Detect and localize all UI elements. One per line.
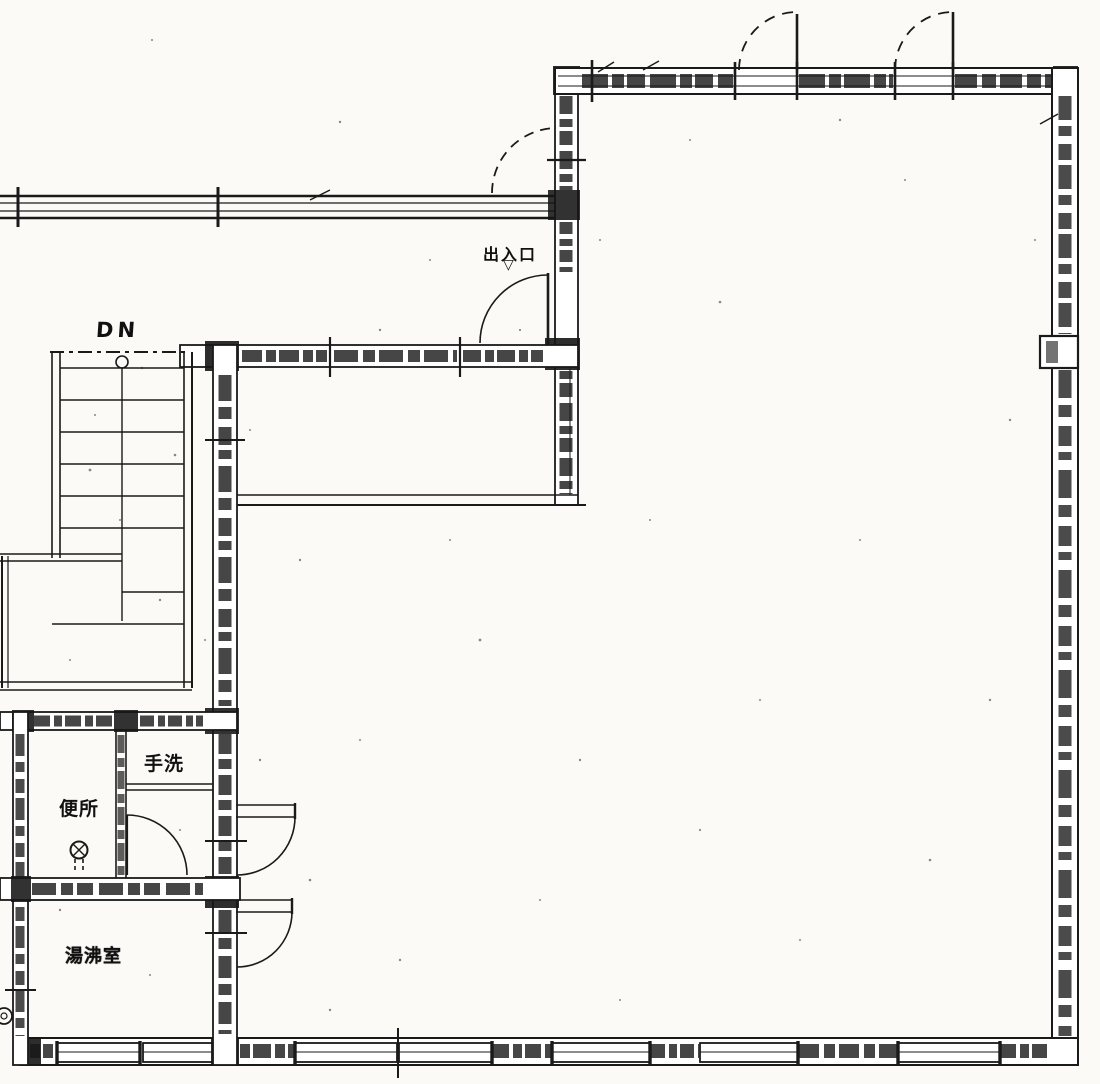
stair-direction-label: DN bbox=[95, 318, 140, 342]
entrance-wall-vertical bbox=[545, 66, 586, 505]
service-block-walls bbox=[0, 710, 240, 1065]
top-wall-door-left bbox=[739, 12, 797, 70]
top-wall-door-right bbox=[895, 12, 953, 70]
inner-room-thin-walls bbox=[230, 367, 578, 505]
corridor-door-upper bbox=[236, 803, 295, 875]
inner-wall-vestibule-south bbox=[180, 337, 578, 377]
floor-plan-drawing bbox=[0, 0, 1100, 1084]
exterior-wall-top bbox=[555, 60, 1078, 102]
exterior-wall-right bbox=[1040, 68, 1078, 1065]
scan-noise bbox=[59, 39, 1036, 1011]
floor-plan-sheet: DN 出入口 ▽ 手洗 便所 湯沸室 bbox=[0, 0, 1100, 1084]
main-vertical-wall bbox=[205, 345, 247, 1065]
toilet-fixture bbox=[71, 842, 88, 874]
toilet-door bbox=[127, 815, 187, 875]
sink-fixture bbox=[0, 1008, 12, 1024]
exterior-wall-left-wing-top bbox=[0, 187, 558, 227]
entrance-door bbox=[480, 273, 548, 345]
entrance-marker-icon: ▽ bbox=[503, 257, 514, 273]
toilet-label: 便所 bbox=[59, 794, 99, 821]
hand-wash-label: 手洗 bbox=[144, 749, 184, 776]
hot-water-room-label: 湯沸室 bbox=[65, 942, 122, 968]
staircase bbox=[0, 352, 192, 690]
exterior-wall-bottom bbox=[15, 1028, 1078, 1078]
